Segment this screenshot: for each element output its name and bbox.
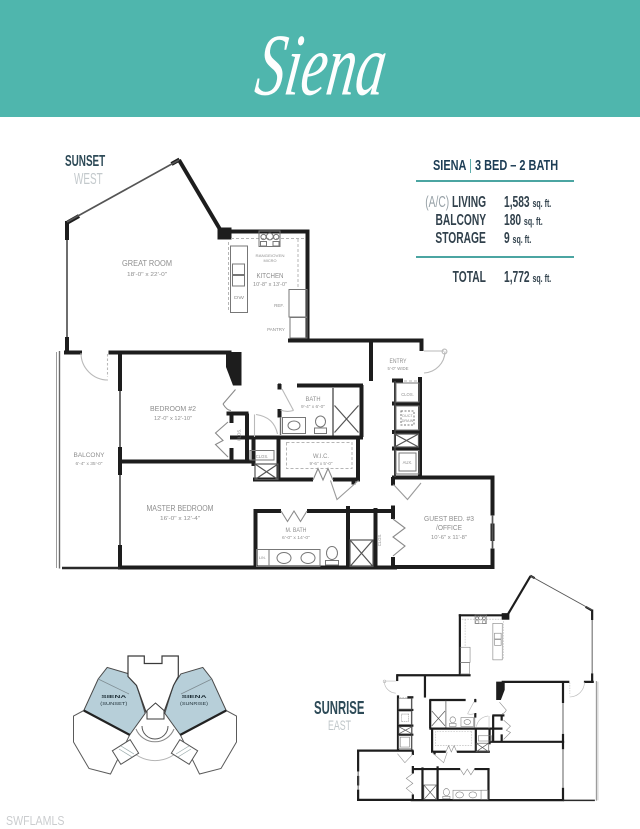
svg-text:CLOS.: CLOS. [256,454,269,459]
svg-text:CLOS.: CLOS. [401,392,414,397]
svg-text:CLOS.: CLOS. [237,429,242,442]
svg-text:10'-6" x 11'-8": 10'-6" x 11'-8" [431,535,467,541]
svg-text:DW: DW [234,295,245,301]
svg-text:SIENA: SIENA [101,694,127,699]
svg-text:GUEST BED. #3: GUEST BED. #3 [424,516,474,523]
svg-text:REF.: REF. [274,303,284,308]
svg-text:BALCONY: BALCONY [74,452,106,459]
svg-text:5'-0" WIDE: 5'-0" WIDE [388,366,409,371]
svg-text:BEDROOM #2: BEDROOM #2 [150,406,196,413]
svg-text:MICRO: MICRO [264,258,277,263]
svg-text:18'-0" x 22'-0": 18'-0" x 22'-0" [127,272,167,278]
svg-text:DRAIN: DRAIN [402,419,414,423]
svg-text:MASTER BEDROOM: MASTER BEDROOM [147,504,214,513]
svg-text:/OFFICE: /OFFICE [436,525,462,532]
svg-text:6'-0" x 14'-0": 6'-0" x 14'-0" [282,535,310,540]
svg-text:9'-4" x 6'-0": 9'-4" x 6'-0" [301,404,325,409]
svg-text:16'-0" x 12'-4": 16'-0" x 12'-4" [160,516,200,522]
svg-text:ENTRY: ENTRY [390,359,407,365]
svg-text:SIENA: SIENA [182,694,208,699]
svg-text:W.I.C.: W.I.C. [313,453,329,460]
svg-text:PANTRY: PANTRY [267,327,285,332]
svg-text:LIN.: LIN. [259,556,266,560]
svg-text:10'-8" x 13'-0": 10'-8" x 13'-0" [253,282,287,288]
svg-text:CLOS.: CLOS. [377,534,382,547]
svg-text:6'-4" x 35'-0": 6'-4" x 35'-0" [76,461,103,466]
svg-text:M. BATH: M. BATH [286,527,307,534]
svg-text:12'-0" x 12'-10": 12'-0" x 12'-10" [154,416,192,422]
svg-text:BATH: BATH [306,396,321,403]
svg-text:9'-6" x 5'-0": 9'-6" x 5'-0" [310,461,333,466]
svg-text:DUCT: DUCT [402,414,413,418]
svg-text:(SUNSET): (SUNSET) [100,701,128,706]
svg-text:KITCHEN: KITCHEN [257,273,284,280]
svg-text:GREAT ROOM: GREAT ROOM [122,259,172,268]
svg-text:(SUNRISE): (SUNRISE) [180,701,209,706]
svg-text:AUX.: AUX. [403,460,413,465]
